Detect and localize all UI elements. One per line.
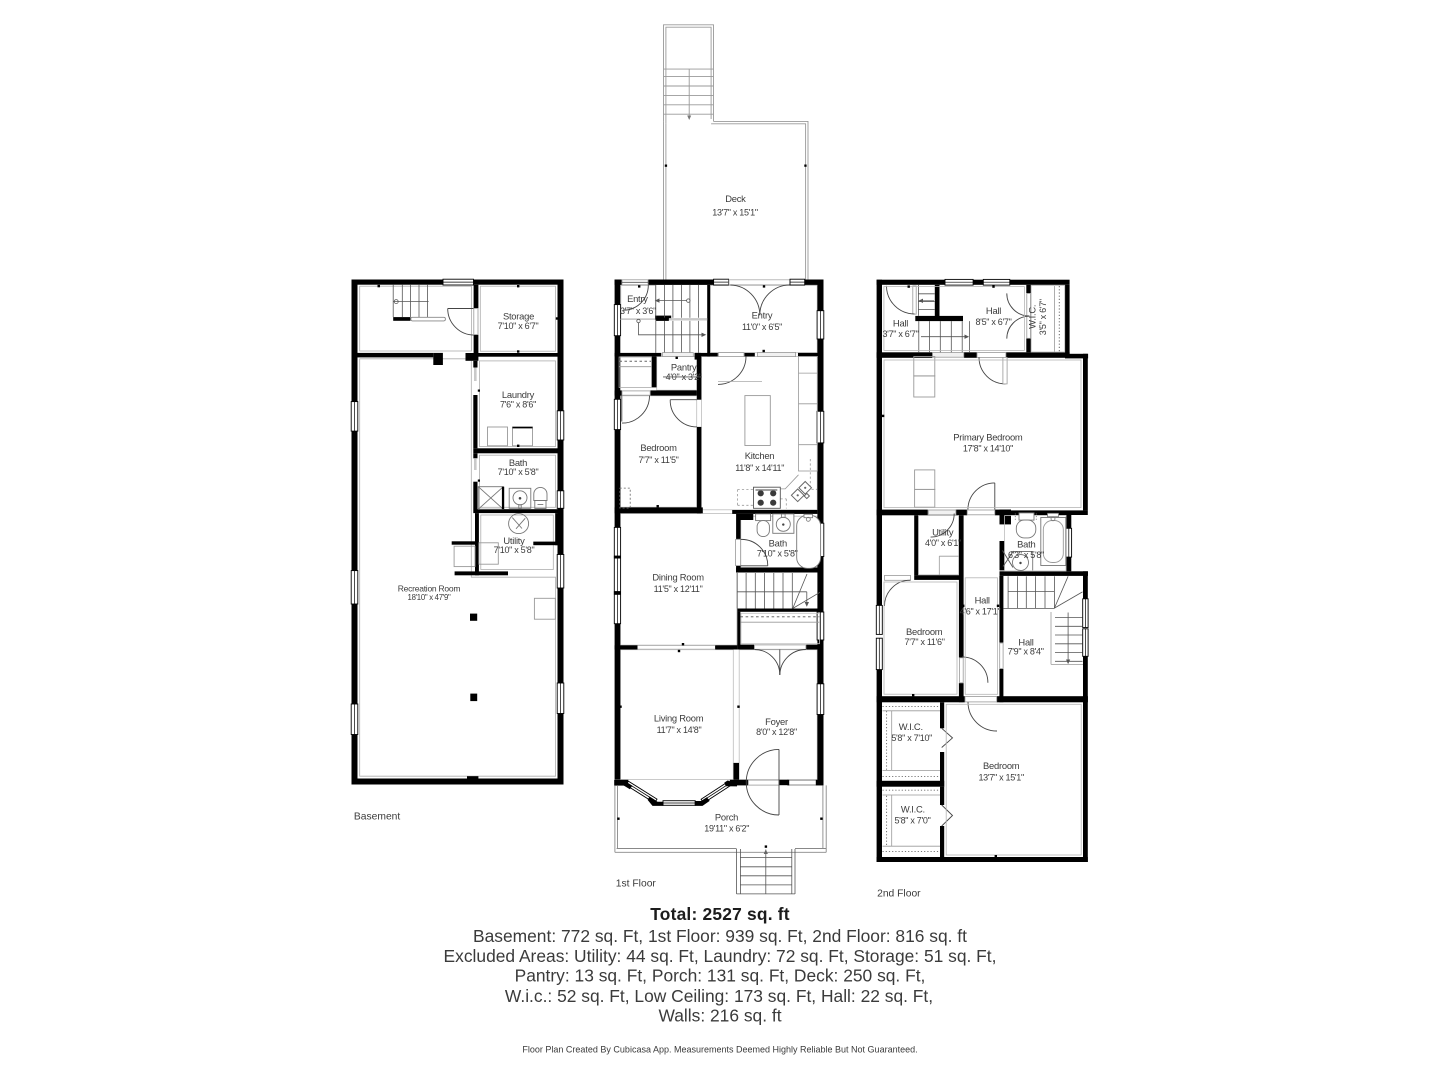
svg-text:Utility: Utility xyxy=(932,526,954,537)
svg-text:Foyer: Foyer xyxy=(765,716,788,727)
svg-text:Basement: Basement xyxy=(354,812,401,823)
svg-text:Basement: 772 sq. Ft, 1st Floo: Basement: 772 sq. Ft, 1st Floor: 939 sq.… xyxy=(473,926,967,946)
svg-text:Deck: Deck xyxy=(725,193,746,204)
svg-text:7'7" x 11'5": 7'7" x 11'5" xyxy=(638,455,678,465)
svg-text:11'8" x 14'11": 11'8" x 14'11" xyxy=(735,463,784,473)
svg-text:Bath: Bath xyxy=(769,538,787,549)
svg-text:Walls: 216 sq. ft: Walls: 216 sq. ft xyxy=(658,1006,781,1026)
svg-text:Hall: Hall xyxy=(986,305,1001,316)
svg-text:17'8" x 14'10": 17'8" x 14'10" xyxy=(963,444,1013,454)
svg-text:2nd Floor: 2nd Floor xyxy=(877,889,921,900)
svg-text:Entry: Entry xyxy=(627,293,648,304)
svg-text:Bedroom: Bedroom xyxy=(906,626,943,637)
svg-text:7'9" x 8'4": 7'9" x 8'4" xyxy=(1008,647,1044,657)
svg-text:4'0" x 6'1": 4'0" x 6'1" xyxy=(925,538,961,548)
svg-text:3'7" x 6'7": 3'7" x 6'7" xyxy=(882,329,918,339)
svg-text:5'8" x 7'0": 5'8" x 7'0" xyxy=(894,816,930,826)
svg-text:4'6" x 17'1": 4'6" x 17'1" xyxy=(960,606,1001,616)
svg-text:13'7" x 15'1": 13'7" x 15'1" xyxy=(712,207,758,217)
svg-text:W.I.C.: W.I.C. xyxy=(899,721,923,732)
svg-text:7'7" x 11'6": 7'7" x 11'6" xyxy=(905,637,945,647)
svg-text:6'3" x 5'8": 6'3" x 5'8" xyxy=(1008,550,1044,560)
svg-text:Primary Bedroom: Primary Bedroom xyxy=(953,432,1023,443)
svg-text:11'0" x 6'5": 11'0" x 6'5" xyxy=(742,322,782,332)
svg-text:Excluded Areas: Utility: 44 sq: Excluded Areas: Utility: 44 sq. Ft, Laun… xyxy=(444,946,997,966)
svg-text:Porch: Porch xyxy=(715,812,738,823)
svg-text:W.I.C.: W.I.C. xyxy=(1027,305,1038,329)
svg-text:Floor Plan Created By Cubicasa: Floor Plan Created By Cubicasa App. Meas… xyxy=(522,1044,917,1054)
svg-text:8'0" x 12'8": 8'0" x 12'8" xyxy=(756,727,797,737)
svg-text:13'7" x 15'1": 13'7" x 15'1" xyxy=(978,773,1024,783)
svg-text:1st Floor: 1st Floor xyxy=(616,878,657,889)
svg-text:W.I.C.: W.I.C. xyxy=(901,804,925,815)
svg-text:W.i.c.: 52 sq. Ft, Low Ceiling: W.i.c.: 52 sq. Ft, Low Ceiling: 173 sq. … xyxy=(505,986,933,1006)
svg-text:Entry: Entry xyxy=(752,310,773,321)
svg-text:Hall: Hall xyxy=(893,317,908,328)
svg-text:Pantry: Pantry xyxy=(671,361,697,372)
svg-text:3'5" x 6'7": 3'5" x 6'7" xyxy=(1038,299,1048,335)
svg-text:Pantry: 13 sq. Ft, Porch: 131: Pantry: 13 sq. Ft, Porch: 131 sq. Ft, De… xyxy=(515,966,926,986)
svg-text:Kitchen: Kitchen xyxy=(745,450,775,461)
svg-text:Bedroom: Bedroom xyxy=(983,760,1020,771)
svg-text:7'10" x 6'7": 7'10" x 6'7" xyxy=(498,321,539,331)
svg-text:Bath: Bath xyxy=(1017,538,1035,549)
svg-text:7'6" x 8'6": 7'6" x 8'6" xyxy=(500,399,536,409)
svg-text:19'11" x 6'2": 19'11" x 6'2" xyxy=(704,824,749,834)
svg-text:Bedroom: Bedroom xyxy=(640,442,677,453)
svg-text:7'10" x 5'8": 7'10" x 5'8" xyxy=(494,545,535,555)
svg-text:Living Room: Living Room xyxy=(654,712,704,723)
svg-text:7'10" x 5'8": 7'10" x 5'8" xyxy=(757,549,798,559)
svg-text:18'10" x 47'9": 18'10" x 47'9" xyxy=(408,593,451,602)
svg-text:Hall: Hall xyxy=(975,595,990,606)
svg-text:5'8" x 7'10": 5'8" x 7'10" xyxy=(891,733,932,743)
svg-text:11'7" x 14'8": 11'7" x 14'8" xyxy=(657,725,702,735)
svg-text:3'7" x 3'6": 3'7" x 3'6" xyxy=(620,306,656,316)
svg-text:7'10" x 5'8": 7'10" x 5'8" xyxy=(498,467,539,477)
svg-text:11'5" x 12'11": 11'5" x 12'11" xyxy=(654,584,703,594)
svg-text:Recreation Room: Recreation Room xyxy=(398,583,461,593)
svg-text:Total: 2527 sq. ft: Total: 2527 sq. ft xyxy=(650,904,790,924)
svg-text:Dining Room: Dining Room xyxy=(652,572,704,583)
svg-text:8'5" x 6'7": 8'5" x 6'7" xyxy=(975,317,1011,327)
